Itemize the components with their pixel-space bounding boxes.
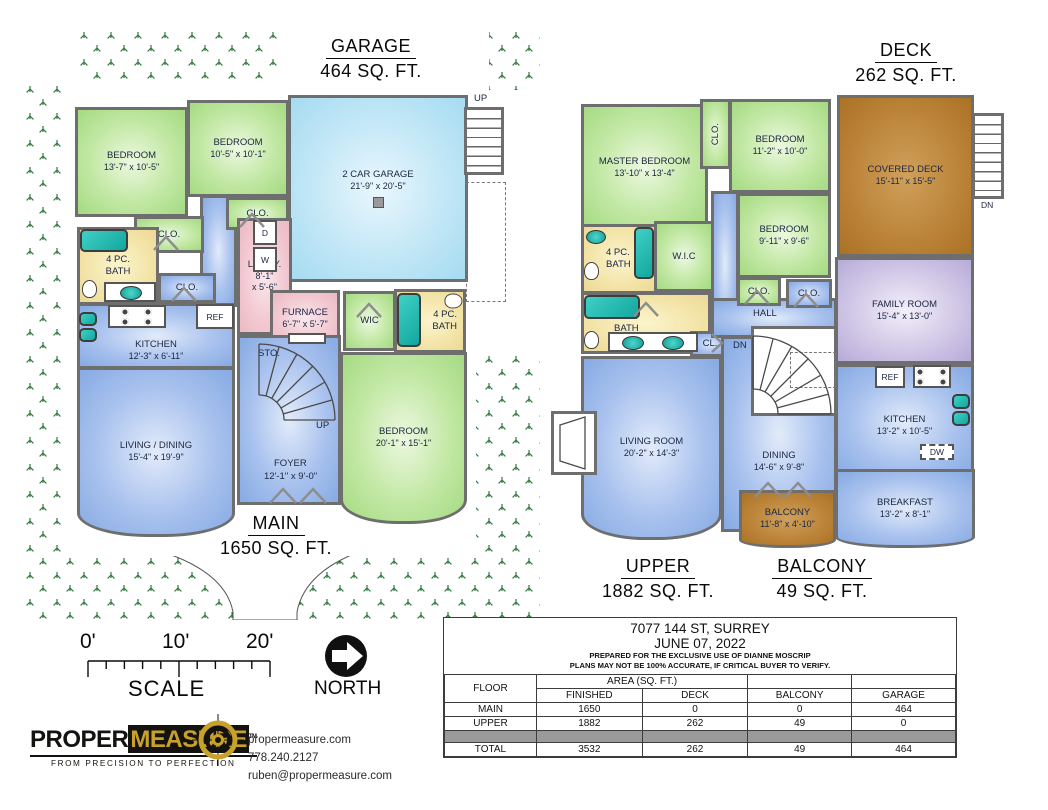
contact-website: propermeasure.com [248,732,392,750]
table-date: JUNE 07, 2022 [444,636,956,651]
bathtub-upper [584,295,640,319]
room-bedroom5: BEDROOM 9'-11" x 9'-6" [737,193,831,278]
logo-word-measure: MEASURE [128,725,249,753]
deck-title: DECK 262 SQ. FT. [840,40,972,86]
closet-master-vertical: CLO. [700,99,731,169]
fridge: REF [196,304,234,329]
scale-tick-20: 20' [246,630,273,654]
contact-email: ruben@propermeasure.com [248,768,392,786]
foyer-dims: 12'-1" x 9'-0" [264,471,317,483]
room-garage: 2 CAR GARAGE 21'-9" x 20'-5" [288,95,468,282]
sink [120,286,142,300]
dishwasher: DW [920,444,954,460]
main-finished: 1650 [536,702,642,716]
deck-title-line2: 262 SQ. FT. [840,65,972,86]
wic-main-label: WIC [360,315,378,327]
balcony-area-label: BALCONY 49 SQ. FT. [762,556,882,602]
main-floor-label: MAIN 1650 SQ. FT. [216,513,336,559]
main-bath-label2: BATH [106,266,131,278]
col-finished-header: FINISHED [536,688,642,702]
master-bedroom-dims: 13'-10" x 13'-4" [614,168,674,179]
table-note2: PLANS MAY NOT BE 100% ACCURATE, IF CRITI… [444,661,956,671]
living-dining-dims: 15'-4" x 19'-9" [128,452,183,463]
living-upper-dims: 20'-2" x 14'-3" [624,448,679,459]
fridge-label: REF [207,312,224,322]
room-bedroom4: BEDROOM 11'-2" x 10'-0" [729,99,831,193]
main-deck: 0 [642,702,747,716]
vanity-sink-2 [662,336,684,350]
sep-4 [748,730,852,742]
balcony-area-label-line2: 49 SQ. FT. [762,581,882,602]
scale-tick-0: 0' [80,630,96,654]
balcony-name: BALCONY [765,507,810,519]
sep-5 [852,730,956,742]
total-row-label: TOTAL [445,742,537,756]
vanity-sink-1 [622,336,644,350]
closet-bed5-label: CLO. [748,286,770,298]
balcony-dims: 11'-8" x 4'-10" [760,519,815,530]
bath4-label1: 4 PC. [606,247,630,259]
main-garage: 464 [852,702,956,716]
total-balcony: 49 [748,742,852,756]
upper-row-label: UPPER [445,716,537,730]
toilet-2 [445,294,463,309]
table-row-total: TOTAL 3532 262 49 464 [445,742,956,756]
dining-dims: 14'-6" x 9'-8" [754,462,804,473]
upper-floor-label-line1: UPPER [621,556,696,579]
bath4-label2: BATH [606,259,631,271]
bath4-sink [586,230,606,244]
bath5-toilet [584,331,599,349]
table-separator-row [445,730,956,742]
upper-deck: 262 [642,716,747,730]
shower-upper [634,227,654,279]
scale-tick-10: 10' [162,630,189,654]
stove [108,305,166,328]
closet-hall: CLO. [158,273,216,303]
dining-name: DINING [762,450,795,462]
upper-balcony: 49 [748,716,852,730]
living-bay-window [551,411,597,475]
main-row-label: MAIN [445,702,537,716]
bedroom4-name: BEDROOM [755,134,804,146]
garage-entry-stairs [464,107,504,175]
room-garage-dims: 21'-9" x 20'-5" [350,181,405,192]
upper-finished: 1882 [536,716,642,730]
garage-title-line2: 464 SQ. FT. [300,61,442,82]
bedroom3-dims: 20'-1" x 15'-1" [376,438,431,449]
sep-1 [445,730,537,742]
contact-block: propermeasure.com 778.240.2127 ruben@pro… [248,732,392,785]
room-covered-deck: COVERED DECK 15'-11" x 15'-5" [837,95,974,257]
closet-hall-2-label: CLO. [798,288,820,300]
stove-burners [121,308,153,326]
covered-deck-dims: 15'-11" x 15'-5" [876,176,936,187]
deck-title-line1: DECK [875,40,937,63]
area-sqft-header: AREA (SQ. FT.) [536,674,747,688]
living-dining-name: LIVING / DINING [120,440,192,452]
room-bedroom3: BEDROOM 20'-1" x 15'-1" [340,352,467,524]
kitchen-main-name: KITCHEN [135,339,177,351]
main-bath-label1: 4 PC. [106,254,130,266]
garage-title-line1: GARAGE [326,36,416,59]
closet-master-label: CLO. [710,123,722,145]
closet-bed1-label: CLO. [158,229,180,241]
bedroom5-name: BEDROOM [759,224,808,236]
main-balcony: 0 [748,702,852,716]
garage-side-dashed [466,182,506,302]
furnace-unit [288,333,326,344]
main-floor-label-line2: 1650 SQ. FT. [216,538,336,559]
stairs-up-label: UP [316,420,329,431]
north-label: NORTH [314,678,381,700]
total-finished: 3532 [536,742,642,756]
bath2-label2: BATH [432,321,457,333]
area-table: FLOOR AREA (SQ. FT.) FINISHED DECK BALCO… [444,674,956,757]
room-breakfast: BREAKFAST 13'-2" x 8'-1" [835,469,975,548]
kitchen-main-dims: 12'-3" x 6'-11" [129,351,184,362]
kitchen-sink-main [79,312,97,326]
upper-hall-horizontal-label: HALL [753,308,777,319]
kitchen-sink-main-2 [79,328,97,342]
upper-floor-label-line2: 1882 SQ. FT. [598,581,718,602]
bath4-toilet [584,262,599,280]
closet-bed5: CLO. [737,277,781,306]
bath2-label1: 4 PC. [433,309,457,321]
sep-2 [536,730,642,742]
room-wic-main: WIC [343,291,396,351]
stove-upper [913,365,951,388]
contact-phone: 778.240.2127 [248,750,392,768]
col-balcony-header: BALCONY [748,688,852,702]
upper-stairs-dn-label: DN [733,340,747,351]
deck-stairs [972,113,1004,199]
col-garage-header: GARAGE [852,688,956,702]
room-bedroom1-name: BEDROOM [107,150,156,162]
room-balcony: BALCONY 11'-8" x 4'-10" [739,490,836,548]
upper-stairs-dashed [790,352,836,388]
propermeasure-logo: PROPERMEASURETM FROM PRECISION TO PERFEC… [30,728,257,768]
header-spacer-1 [748,674,852,688]
table-note1: PREPARED FOR THE EXCLUSIVE USE OF DIANNE… [444,651,956,661]
breakfast-dims: 13'-2" x 8'-1" [880,509,930,520]
room-bedroom2: BEDROOM 10'-5" x 10'-1" [187,100,289,197]
bedroom3-name: BEDROOM [379,426,428,438]
room-foyer: STO. UP FOYER 12'-1" x 9'-0" [237,335,341,505]
deck-stairs-dn-label: DN [981,200,993,210]
bathtub-2 [397,293,421,347]
room-bedroom1: BEDROOM 13'-7" x 10'-5" [75,107,188,217]
room-bedroom2-dims: 10'-5" x 10'-1" [210,149,265,160]
table-row-main: MAIN 1650 0 0 464 [445,702,956,716]
dryer-label: D [262,228,268,238]
toilet [82,280,97,298]
room-living-dining: LIVING / DINING 15'-4" x 19'-9" [77,367,235,537]
kitchen-upper-dims: 13'-2" x 10'-5" [877,426,932,437]
info-table: 7077 144 ST, SURREY JUNE 07, 2022 PREPAR… [443,617,957,758]
closet-hall-label: CLO. [176,282,198,294]
upper-garage: 0 [852,716,956,730]
closet-hall-upper-label: CL. [703,338,718,350]
kitchen-upper-name: KITCHEN [884,414,926,426]
upper-floor-label: UPPER 1882 SQ. FT. [598,556,718,602]
furnace-name: FURNACE [282,307,328,319]
sep-3 [642,730,747,742]
storage-label: STO. [258,348,280,359]
logo-word-proper: PROPER [30,726,128,753]
room-living-upper: LIVING ROOM 20'-2" x 14'-3" [581,356,722,540]
room-master-bedroom: MASTER BEDROOM 13'-10" x 13'-4" [581,104,708,231]
dishwasher-label: DW [930,447,944,457]
balcony-area-label-line1: BALCONY [772,556,872,579]
main-floor-label-line1: MAIN [248,513,305,536]
family-room-name: FAMILY ROOM [872,299,937,311]
total-garage: 464 [852,742,956,756]
garage-title: GARAGE 464 SQ. FT. [300,36,442,82]
table-header-row1: FLOOR AREA (SQ. FT.) [445,674,956,688]
living-upper-name: LIVING ROOM [620,436,683,448]
kitchen-sink-upper-1 [952,394,970,409]
col-floor-header: FLOOR [445,674,537,702]
room-wic-upper: W.I.C [654,221,714,292]
wic-upper-label: W.I.C [672,251,695,263]
room-family: FAMILY ROOM 15'-4" x 13'-0" [835,257,974,364]
closet-hall-2: CLO. [786,279,832,308]
room-bedroom2-name: BEDROOM [213,137,262,149]
header-spacer-2 [852,674,956,688]
laundry-dims1: 8'-1" [256,271,274,282]
room-bedroom1-dims: 13'-7" x 10'-5" [104,162,159,173]
bathtub [80,229,128,252]
master-bedroom-name: MASTER BEDROOM [599,156,690,168]
dryer: D [253,220,277,245]
table-address: 7077 144 ST, SURREY [444,621,956,636]
breakfast-name: BREAKFAST [877,497,933,509]
fridge-upper: REF [875,366,905,388]
garage-stairs-up-label: UP [474,93,487,104]
col-deck-header: DECK [642,688,747,702]
stove-upper-burners [916,368,948,386]
furnace-dims: 6'-7" x 5'-7" [282,319,327,330]
scale-label: SCALE [128,676,205,702]
covered-deck-name: COVERED DECK [867,164,943,176]
washer-label: W [261,255,269,265]
bedroom4-dims: 11'-2" x 10'-0" [753,146,808,157]
fridge-upper-label: REF [882,372,899,382]
bedroom5-dims: 9'-11" x 9'-6" [759,236,809,247]
foyer-name: FOYER [274,458,307,469]
logo-wordmark: PROPERMEASURETM [30,728,257,752]
north-arrow-icon [322,632,370,680]
total-deck: 262 [642,742,747,756]
garage-post [373,197,384,208]
floor-plan-sheet: 2 CAR GARAGE 21'-9" x 20'-5" BEDROOM 13'… [0,0,1048,810]
table-row-upper: UPPER 1882 262 49 0 [445,716,956,730]
washer: W [253,247,277,272]
kitchen-sink-upper-2 [952,411,970,426]
room-garage-name: 2 CAR GARAGE [342,169,413,181]
family-room-dims: 15'-4" x 13'-0" [877,311,932,322]
logo-tagline: FROM PRECISION TO PERFECTION [30,755,257,768]
